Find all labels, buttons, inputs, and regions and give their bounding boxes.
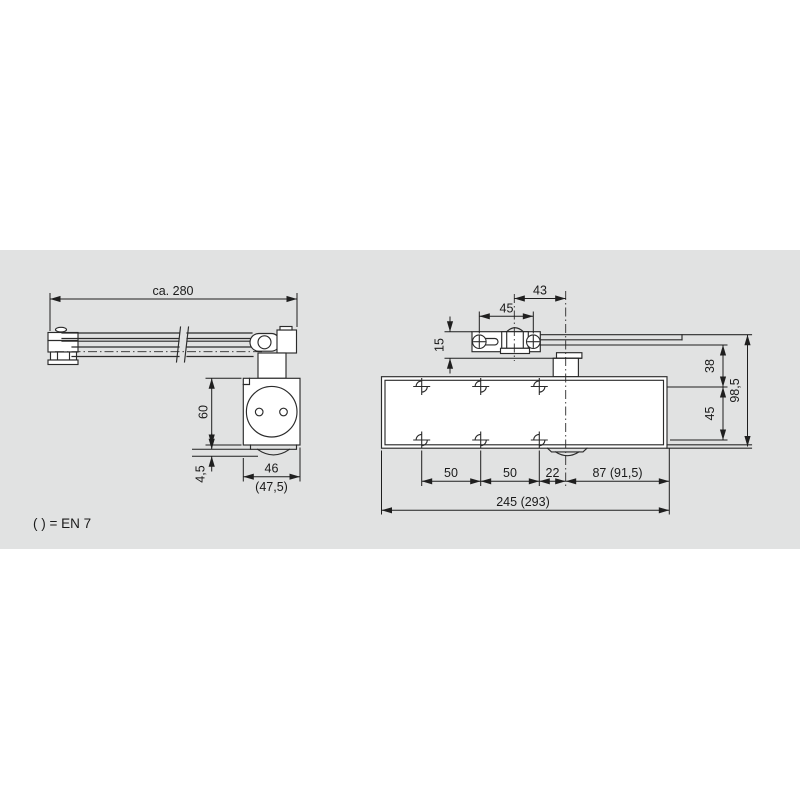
dim-label-total-height: 98,5	[728, 378, 742, 402]
bracket-screw	[527, 335, 541, 349]
dim-label-hole-to-axis: 22	[546, 466, 560, 480]
dim-label-arm-to-screws: 38	[703, 359, 717, 373]
dim-label-body-width-en7: (47,5)	[255, 480, 288, 494]
dim-label-bracket-holes: 45	[500, 301, 514, 315]
drawing-page: ca. 280 60 4,5 46 (47,5)	[0, 0, 800, 800]
dim-label-pivot-to-spindle: 43	[533, 284, 547, 298]
en7-note: ( ) = EN 7	[33, 516, 91, 531]
dim-label-overall-length: ca. 280	[152, 284, 193, 298]
closer-body-front	[382, 377, 668, 449]
technical-drawing: ca. 280 60 4,5 46 (47,5)	[0, 0, 800, 800]
dim-label-bracket-offset: 15	[433, 338, 447, 352]
spindle-side	[258, 353, 286, 378]
dim-label-hole-pitch-2: 50	[503, 466, 517, 480]
dim-label-plate-thickness: 4,5	[194, 465, 208, 482]
dim-label-body-length: 245 (293)	[496, 495, 550, 509]
dim-label-screw-rows: 45	[703, 407, 717, 421]
dim-label-body-height: 60	[197, 405, 211, 419]
arm-pivot	[258, 336, 271, 349]
shoe-screw-head	[56, 327, 67, 332]
dim-label-body-width: 46	[265, 462, 279, 476]
dim-label-axis-to-end: 87 (91,5)	[592, 466, 642, 480]
dim-label-hole-pitch-1: 50	[444, 466, 458, 480]
closer-body-side	[243, 378, 300, 445]
bracket-screw	[473, 335, 487, 349]
